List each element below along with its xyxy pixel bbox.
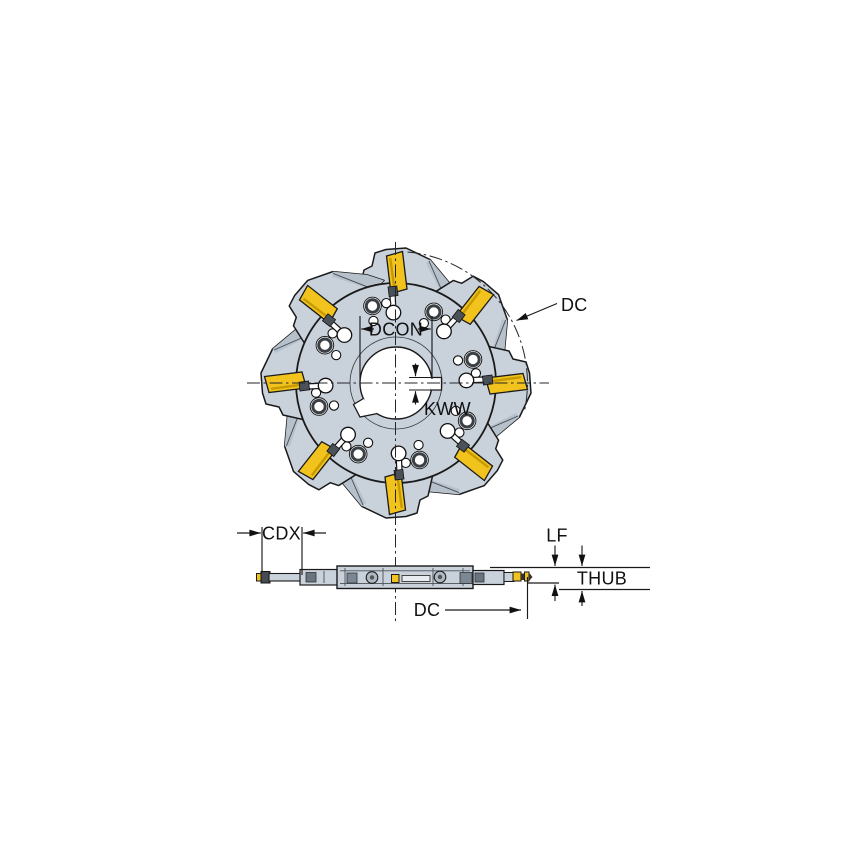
side-view: CDX LF THUB DC [237, 524, 650, 621]
kww-label: KWW [424, 399, 471, 419]
drawing-canvas: DCON KWW DC [0, 0, 854, 854]
side-left-arm [269, 574, 301, 582]
cdx-dimension: CDX [237, 524, 326, 576]
side-right-insert [525, 572, 530, 581]
dc-leader: DC [517, 295, 588, 321]
lf-label: LF [546, 526, 568, 546]
side-right-insert [513, 572, 521, 581]
dc-side-label: DC [414, 600, 441, 620]
cdx-label: CDX [262, 524, 301, 544]
thub-label: THUB [577, 569, 627, 589]
milling-cutter-drawing: DCON KWW DC [0, 0, 854, 854]
dcon-label: DCON [369, 320, 423, 340]
dc-label: DC [561, 295, 588, 315]
front-view: DCON KWW DC [247, 242, 588, 622]
side-insert-slot [392, 575, 400, 583]
thub-dimension: THUB [559, 546, 650, 607]
keyway [431, 378, 442, 391]
side-right-tip [529, 573, 533, 582]
